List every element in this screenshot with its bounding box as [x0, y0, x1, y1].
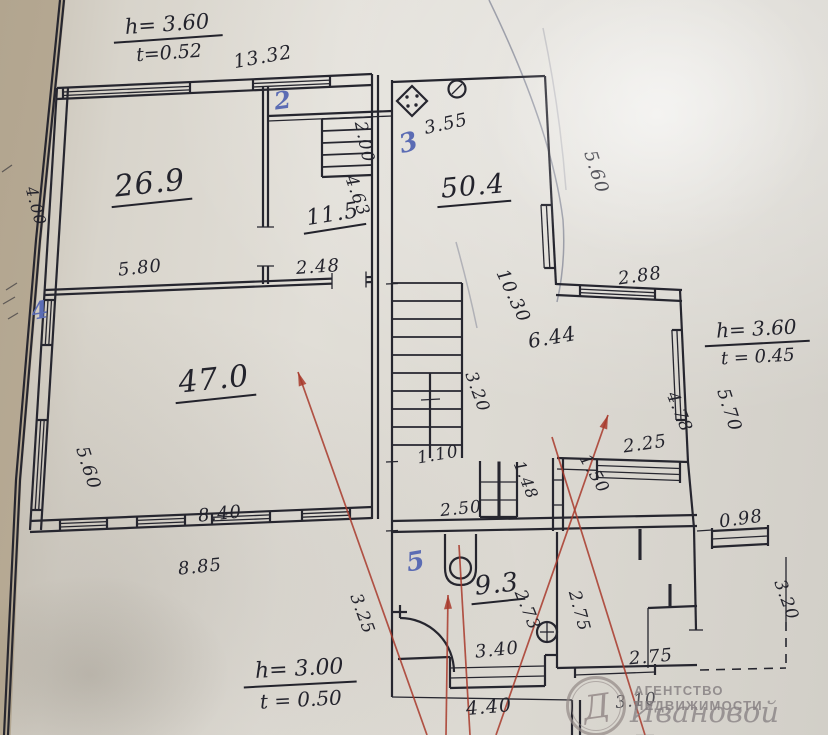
wall-top-left — [57, 74, 372, 99]
height-note-top-left: h= 3.60 t=0.52 — [112, 8, 224, 67]
agency-logo: Д — [566, 676, 626, 735]
floor-plan-photo: h= 3.60 t=0.52 h= 3.60 t = 0.45 h= 3.00 … — [0, 0, 828, 735]
watermark-name-line: Ивановой Дарьи — [630, 695, 828, 735]
floor-plan-drawing — [0, 0, 828, 735]
stove-symbol — [397, 86, 427, 116]
wall-hall-left — [386, 80, 398, 697]
agency-monogram: Д — [580, 685, 612, 727]
height-note-bottom-left: h= 3.00 t = 0.50 — [242, 654, 357, 715]
stairs-main — [393, 283, 462, 458]
room-number-2: 2 — [272, 84, 294, 115]
meter-symbol — [449, 81, 466, 98]
dim-porch-bottom: 4.40 — [465, 694, 513, 720]
area-room-50-4: 50.4 — [435, 168, 512, 208]
right-porch — [697, 525, 786, 670]
dim-room11-width: 2.48 — [295, 255, 340, 279]
dim-annex-right-width: 2.75 — [628, 645, 674, 670]
height-note-top-right: h= 3.60 t = 0.45 — [703, 314, 810, 370]
